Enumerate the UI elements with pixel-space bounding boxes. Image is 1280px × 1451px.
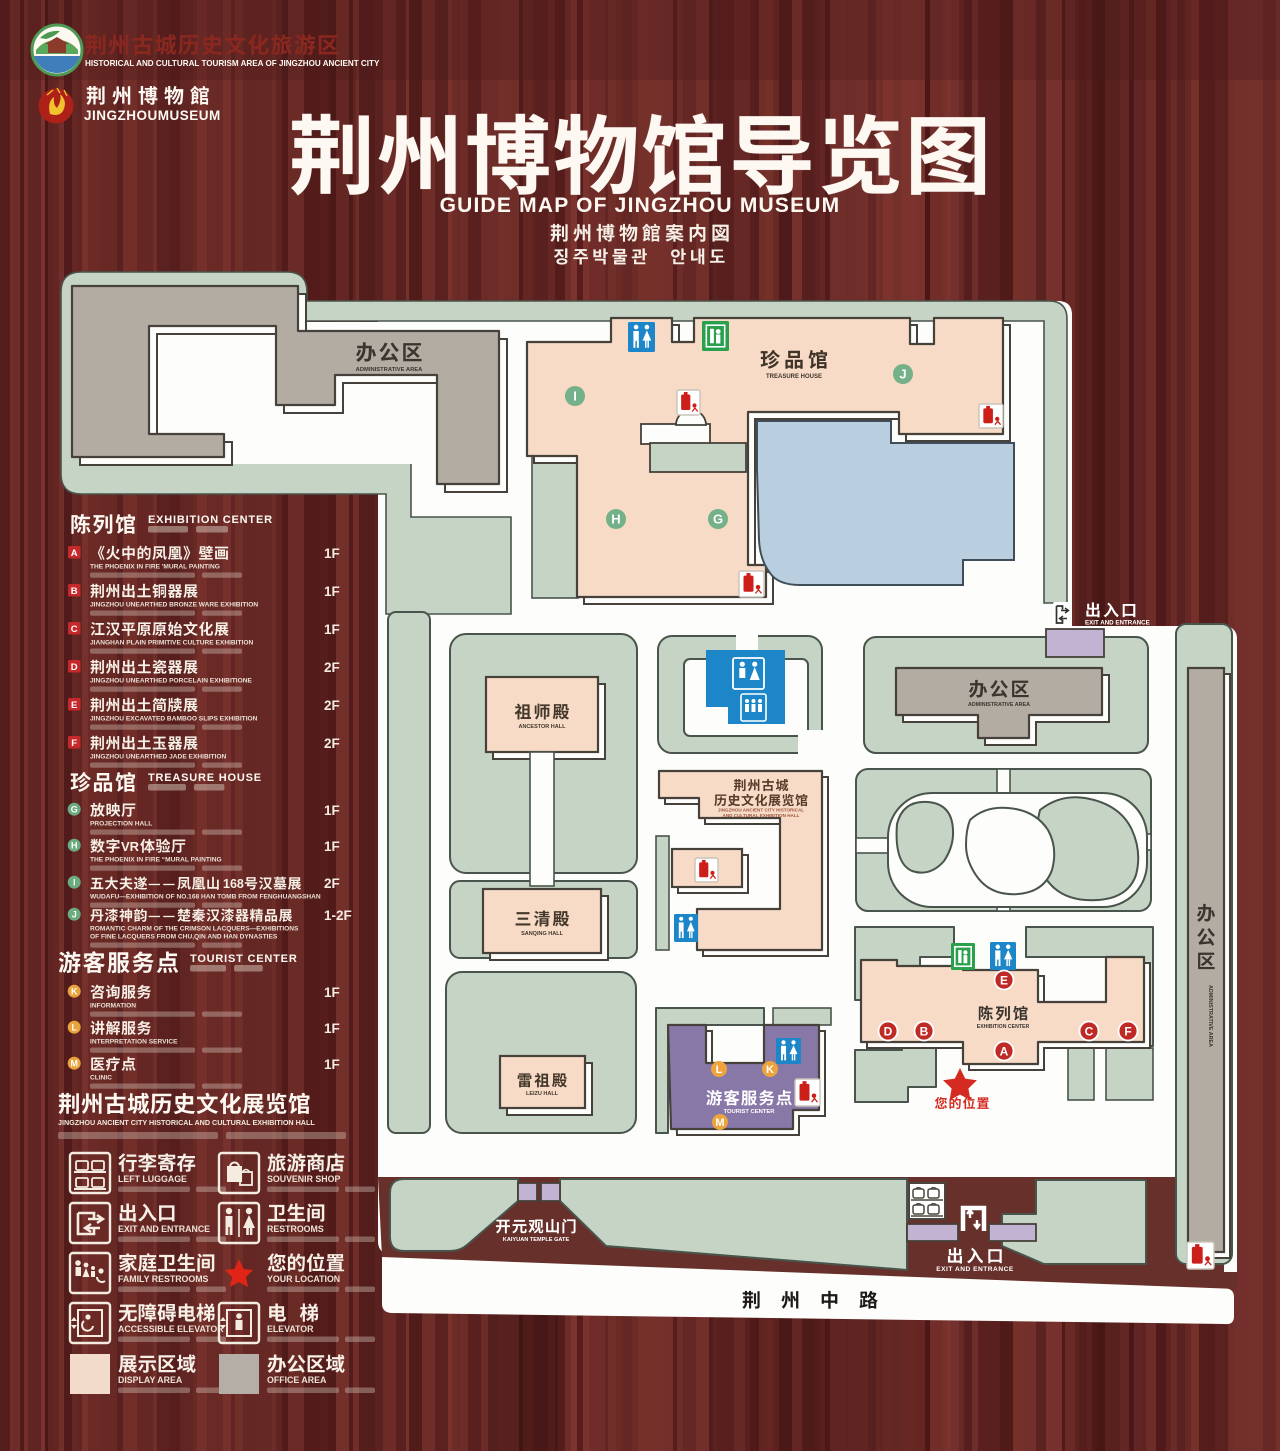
svg-text:1F: 1F <box>324 584 340 599</box>
svg-text:D: D <box>884 1024 893 1038</box>
svg-text:M: M <box>70 1058 78 1068</box>
svg-text:E: E <box>71 700 77 711</box>
svg-text:SANQING HALL: SANQING HALL <box>521 931 564 937</box>
svg-text:TOURIST CENTER: TOURIST CENTER <box>190 953 298 965</box>
svg-text:INFORMATION: INFORMATION <box>90 1003 136 1010</box>
svg-text:I: I <box>73 877 76 887</box>
svg-text:JINGZHOUMUSEUM: JINGZHOUMUSEUM <box>84 108 221 123</box>
svg-text:JINGZHOU UNEARTHED PORCELAIN E: JINGZHOU UNEARTHED PORCELAIN EXHIBITIONE <box>90 678 253 685</box>
svg-text:TREASURE HOUSE: TREASURE HOUSE <box>766 374 822 380</box>
svg-text:INTERPRETATION SERVICE: INTERPRETATION SERVICE <box>90 1039 178 1046</box>
svg-text:VR: VR <box>121 839 140 854</box>
svg-text:TOURIST CENTER: TOURIST CENTER <box>724 1109 776 1115</box>
svg-text:PROJECTION HALL: PROJECTION HALL <box>90 821 152 828</box>
svg-text:2F: 2F <box>324 876 340 891</box>
svg-text:KAIYUAN TEMPLE GATE: KAIYUAN TEMPLE GATE <box>503 1237 570 1243</box>
svg-text:FAMILY RESTROOMS: FAMILY RESTROOMS <box>118 1274 209 1284</box>
svg-text:ADMINISTRATIVE AREA: ADMINISTRATIVE AREA <box>968 702 1030 708</box>
svg-text:K: K <box>71 986 78 996</box>
svg-text:EXHIBITION CENTER: EXHIBITION CENTER <box>148 514 273 526</box>
svg-text:RESTROOMS: RESTROOMS <box>267 1224 324 1234</box>
svg-text:OFFICE AREA: OFFICE AREA <box>267 1375 327 1385</box>
svg-text:GUIDE MAP OF JINGZHOU MUSEUM: GUIDE MAP OF JINGZHOU MUSEUM <box>440 194 841 217</box>
svg-text:F: F <box>71 738 77 749</box>
svg-text:JIANGHAN PLAIN PRIMITIVE CULTU: JIANGHAN PLAIN PRIMITIVE CULTURE EXHIBIT… <box>90 640 254 647</box>
svg-text:DISPLAY AREA: DISPLAY AREA <box>118 1375 183 1385</box>
svg-text:A: A <box>1000 1044 1009 1058</box>
svg-text:LEIZU HALL: LEIZU HALL <box>526 1091 559 1097</box>
svg-text:G: G <box>71 804 78 814</box>
svg-text:THE PHOENIX IN FIRE 'MURAL PAI: THE PHOENIX IN FIRE 'MURAL PAINTING <box>90 564 220 571</box>
svg-text:1F: 1F <box>324 622 340 637</box>
svg-text:H: H <box>71 840 78 850</box>
svg-text:M: M <box>715 1117 724 1129</box>
svg-text:C: C <box>71 624 78 635</box>
svg-text:2F: 2F <box>324 660 340 675</box>
svg-text:JINGZHOU ANCIENT CITY HISTORIC: JINGZHOU ANCIENT CITY HISTORICAL AND CUL… <box>58 1118 315 1127</box>
svg-text:1F: 1F <box>324 546 340 561</box>
svg-text:K: K <box>766 1064 774 1076</box>
svg-text:G: G <box>713 512 723 527</box>
svg-text:A: A <box>71 548 78 559</box>
svg-text:JINGZHOU ANCIENT CITY HISTORIC: JINGZHOU ANCIENT CITY HISTORICAL <box>718 808 804 813</box>
svg-text:YOUR LOCATION: YOUR LOCATION <box>267 1274 340 1284</box>
svg-text:WUDAFU—EXHIBITION OF NO.168 HA: WUDAFU—EXHIBITION OF NO.168 HAN TOMB FRO… <box>90 894 321 901</box>
svg-text:2F: 2F <box>324 736 340 751</box>
svg-text:I: I <box>573 389 577 404</box>
svg-text:SOUVENIR SHOP: SOUVENIR SHOP <box>267 1174 340 1184</box>
svg-text:J: J <box>899 367 906 382</box>
svg-text:1F: 1F <box>324 1021 340 1036</box>
svg-text:ADMINISTRATIVE AREA: ADMINISTRATIVE AREA <box>356 367 423 373</box>
svg-text:J: J <box>72 909 77 919</box>
svg-text:EXIT AND ENTRANCE: EXIT AND ENTRANCE <box>118 1224 210 1234</box>
svg-text:ROMANTIC CHARM OF THE CRIMSON: ROMANTIC CHARM OF THE CRIMSON LACQUERS—E… <box>90 926 299 933</box>
svg-text:HISTORICAL AND CULTURAL TOURIS: HISTORICAL AND CULTURAL TOURISM AREA OF … <box>85 59 380 68</box>
svg-text:CLINIC: CLINIC <box>90 1075 112 1082</box>
svg-text:THE PHOENIX IN FIRE “MURAL PAI: THE PHOENIX IN FIRE “MURAL PAINTING <box>90 857 222 864</box>
svg-text:JINGZHOU EXCAVATED BAMBOO SLIP: JINGZHOU EXCAVATED BAMBOO SLIPS EXHIBITI… <box>90 716 258 723</box>
svg-text:C: C <box>1085 1024 1094 1038</box>
svg-text:ACCESSIBLE ELEVATOR: ACCESSIBLE ELEVATOR <box>118 1324 224 1334</box>
svg-text:168: 168 <box>223 877 244 891</box>
svg-text:JINGZHOU UNEARTHED BRONZE WARE: JINGZHOU UNEARTHED BRONZE WARE EXHIBITIO… <box>90 602 258 609</box>
svg-text:EXIT AND ENTRANCE: EXIT AND ENTRANCE <box>936 1266 1014 1273</box>
svg-text:OF FINE LACQUERS FROM CHU,QIN: OF FINE LACQUERS FROM CHU,QIN AND HAN DY… <box>90 934 278 941</box>
svg-text:EXIT AND ENTRANCE: EXIT AND ENTRANCE <box>1085 620 1150 627</box>
svg-text:B: B <box>920 1024 929 1038</box>
svg-text:1F: 1F <box>324 839 340 854</box>
svg-text:1F: 1F <box>324 985 340 1000</box>
svg-text:AND CULTURAL EXHIBITION HALL: AND CULTURAL EXHIBITION HALL <box>723 813 800 818</box>
svg-text:E: E <box>1000 973 1008 987</box>
svg-text:L: L <box>71 1022 77 1032</box>
svg-text:JINGZHOU UNEARTHED JADE EXHIBI: JINGZHOU UNEARTHED JADE EXHIBITION <box>90 754 227 761</box>
svg-text:ADMINISTRATIVE AREA: ADMINISTRATIVE AREA <box>1207 985 1213 1047</box>
svg-text:LEFT LUGGAGE: LEFT LUGGAGE <box>118 1174 187 1184</box>
svg-text:1F: 1F <box>324 1057 340 1072</box>
svg-text:H: H <box>611 512 620 527</box>
svg-text:1-2F: 1-2F <box>324 908 352 923</box>
svg-text:EXHIBITION CENTER: EXHIBITION CENTER <box>977 1024 1030 1030</box>
svg-text:F: F <box>1124 1024 1131 1038</box>
svg-text:TREASURE HOUSE: TREASURE HOUSE <box>148 772 262 784</box>
svg-text:1F: 1F <box>324 803 340 818</box>
svg-text:L: L <box>716 1064 723 1076</box>
svg-text:ANCESTOR HALL: ANCESTOR HALL <box>519 724 567 730</box>
svg-text:B: B <box>71 586 78 597</box>
svg-text:2F: 2F <box>324 698 340 713</box>
svg-text:D: D <box>71 662 78 673</box>
svg-text:ELEVATOR: ELEVATOR <box>267 1324 314 1334</box>
